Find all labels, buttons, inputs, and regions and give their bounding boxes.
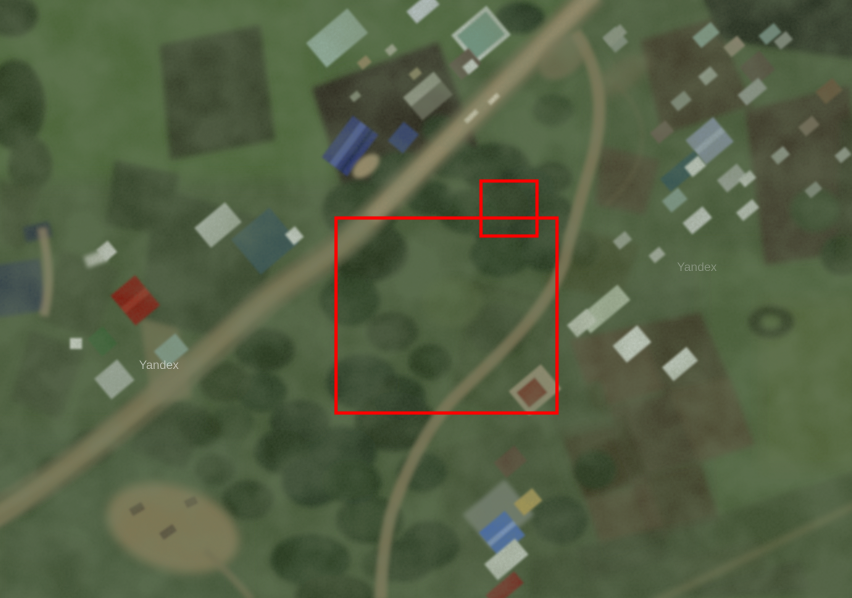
svg-text:Yandex: Yandex (139, 358, 179, 372)
svg-text:Yandex: Yandex (677, 260, 717, 274)
